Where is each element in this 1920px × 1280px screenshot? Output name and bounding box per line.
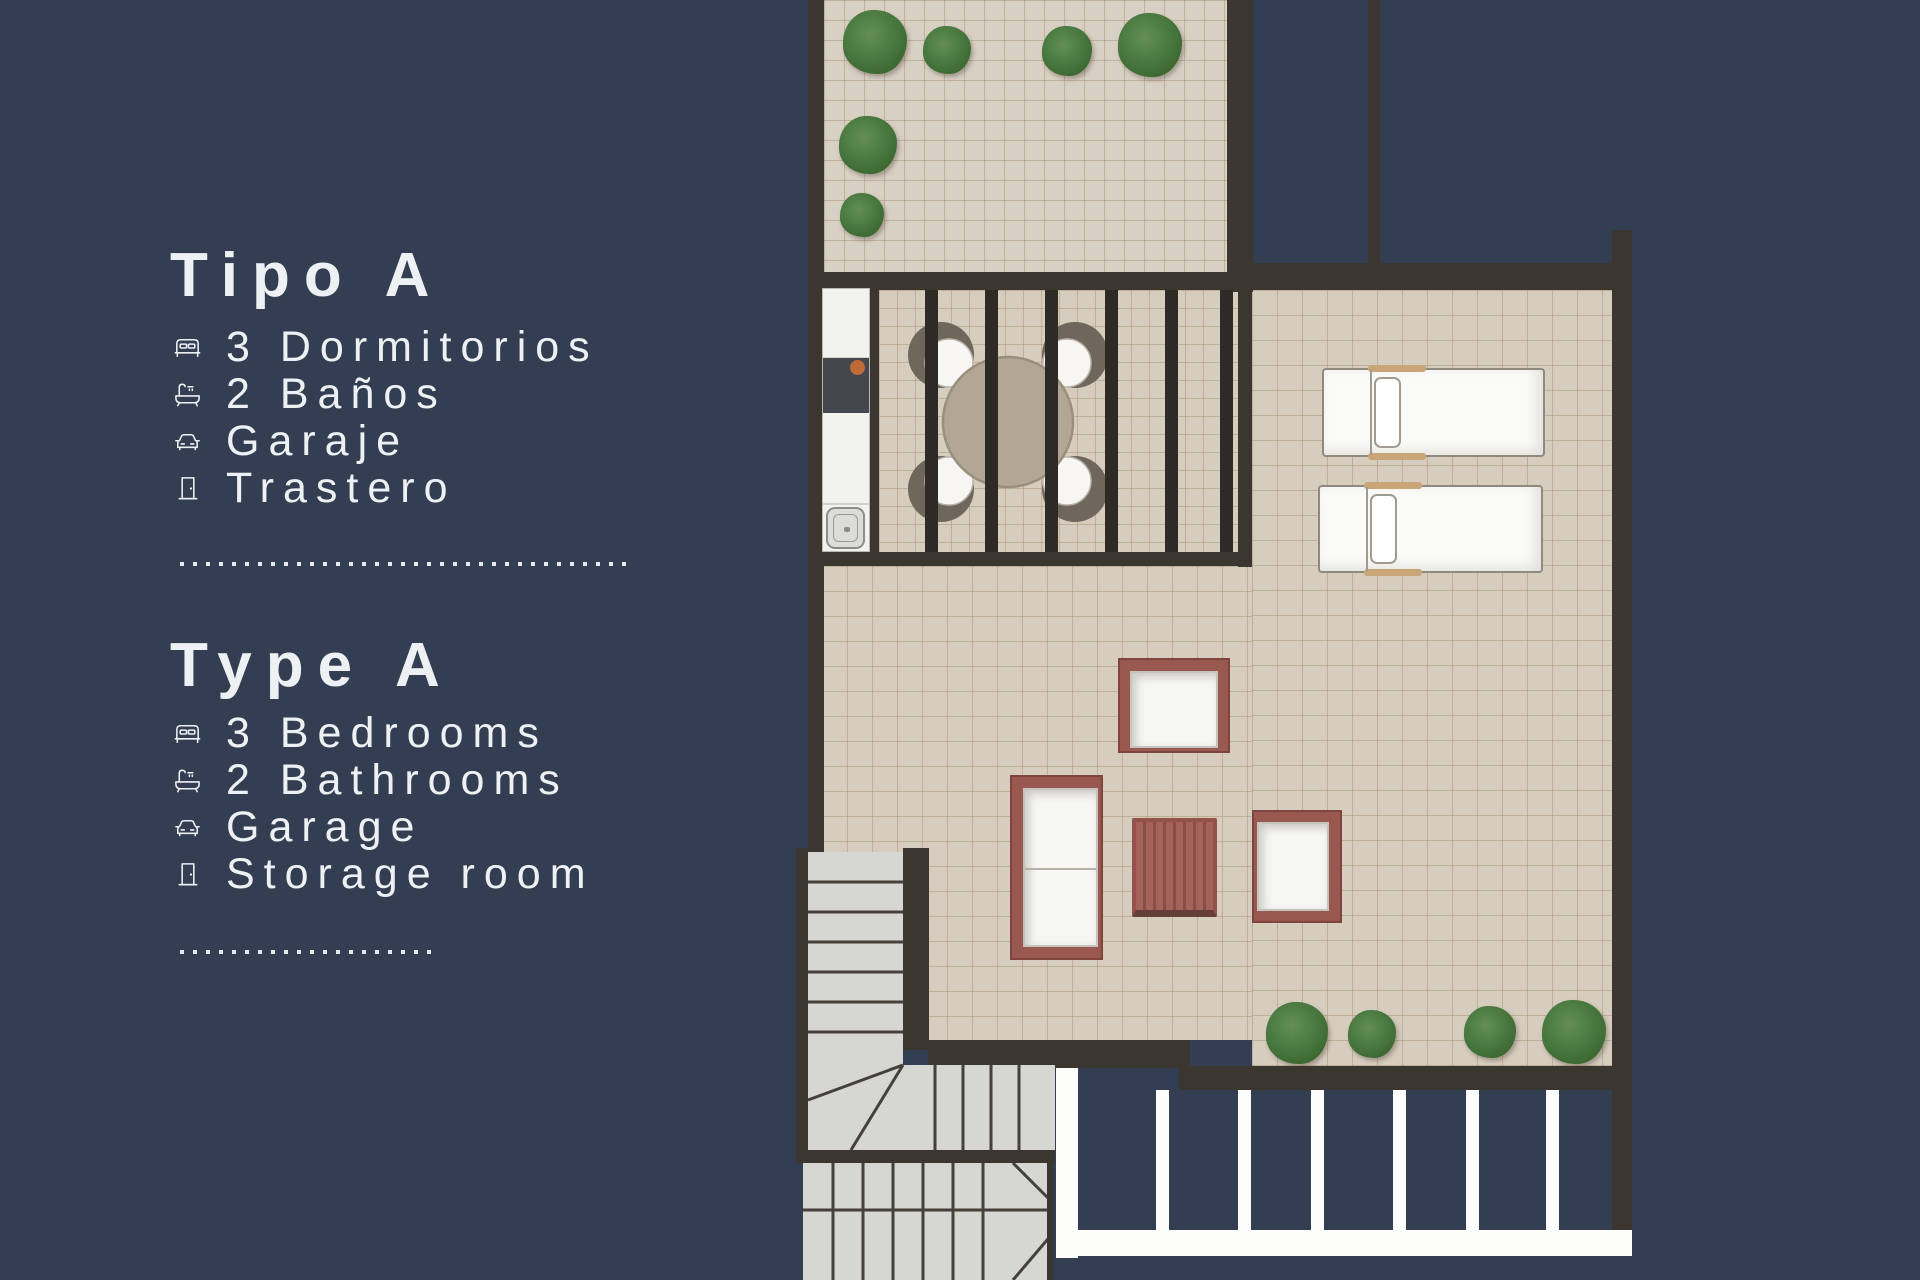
wall-pergola-bottom — [808, 552, 1250, 566]
wall-deck-top — [1238, 263, 1632, 290]
feature-row: Garage — [172, 804, 595, 851]
parking-stripe — [1156, 1090, 1169, 1232]
pergola-slat — [1045, 290, 1058, 552]
bathtub-icon — [172, 379, 203, 410]
feature-label: 3 Dormitorios — [226, 323, 599, 372]
feature-row: 3 Bedrooms — [172, 710, 595, 757]
feature-label: 2 Baños — [226, 370, 447, 419]
feature-label: Garaje — [226, 417, 409, 466]
door-icon — [172, 473, 203, 504]
parking-stripe — [1311, 1090, 1324, 1232]
lounger-backrest-line — [1370, 370, 1372, 455]
wall-bottom-right — [1179, 1066, 1632, 1090]
car-icon — [172, 812, 203, 843]
title-english: Type A — [170, 630, 454, 701]
lounger-pillow — [1370, 494, 1397, 564]
feature-row: 2 Bathrooms — [172, 757, 595, 804]
feature-label: 3 Bedrooms — [226, 709, 548, 758]
lounger-arm — [1364, 569, 1422, 576]
plant — [843, 10, 907, 74]
bathtub-icon — [172, 765, 203, 796]
armchair — [1118, 658, 1230, 753]
counter-seam — [823, 503, 869, 505]
parking-baseline — [1056, 1230, 1632, 1256]
lounger-backrest-line — [1366, 487, 1368, 571]
feature-row: Trastero — [172, 465, 599, 512]
dotted-separator — [180, 562, 635, 566]
plant — [1464, 1006, 1516, 1058]
parking-stripe — [1238, 1090, 1251, 1232]
pergola-slat — [925, 290, 938, 552]
pergola-slat — [1220, 290, 1233, 552]
sun-lounger — [1318, 485, 1543, 573]
armchair — [1252, 810, 1342, 923]
feature-row: 3 Dormitorios — [172, 324, 599, 371]
pergola-slat — [1105, 290, 1118, 552]
feature-list-english: 3 Bedrooms 2 Bathrooms Garage Storage ro… — [172, 710, 595, 898]
sink — [826, 507, 865, 549]
car-icon — [172, 426, 203, 457]
armchair-cushion — [1130, 671, 1218, 748]
kitchenette-counter — [822, 288, 870, 552]
bed-icon — [172, 332, 203, 363]
plant — [840, 193, 884, 237]
door-icon — [172, 859, 203, 890]
bed-icon — [172, 718, 203, 749]
plant — [1266, 1002, 1328, 1064]
parking-stripe — [1546, 1090, 1559, 1232]
lounger-pillow — [1374, 377, 1401, 448]
pergola-slat — [985, 290, 998, 552]
wall-divider — [1238, 290, 1252, 567]
feature-row: Storage room — [172, 851, 595, 898]
plant — [1542, 1000, 1606, 1064]
wall-terrace-right — [1227, 0, 1253, 292]
plant — [1118, 13, 1182, 77]
feature-label: 2 Bathrooms — [226, 756, 569, 805]
feature-list-spanish: 3 Dormitorios 2 Baños Garaje Trastero — [172, 324, 599, 512]
lounger-arm — [1368, 453, 1426, 460]
feature-label: Storage room — [226, 850, 595, 899]
feature-label: Garage — [226, 803, 423, 852]
plant — [1348, 1010, 1396, 1058]
sun-lounger — [1322, 368, 1545, 457]
parking-stripe — [1393, 1090, 1406, 1232]
slatted-coffee-table — [1132, 818, 1217, 917]
wall-counter — [870, 288, 879, 554]
dotted-separator — [180, 950, 432, 954]
feature-label: Trastero — [226, 464, 457, 513]
lounger-arm — [1364, 482, 1422, 489]
title-spanish: Tipo A — [170, 240, 443, 311]
plant — [839, 116, 897, 174]
wall-neighbor — [1368, 0, 1380, 268]
plant — [923, 26, 971, 74]
pergola-slat — [1165, 290, 1178, 552]
feature-row: Garaje — [172, 418, 599, 465]
brochure-page: Tipo A 3 Dormitorios 2 Baños Garaje Tras… — [0, 0, 1920, 1280]
parking-stripe — [1466, 1090, 1479, 1232]
cooktop-burner — [850, 360, 865, 375]
feature-row: 2 Baños — [172, 371, 599, 418]
staircase — [796, 848, 1057, 1280]
armchair-cushion — [1257, 822, 1329, 911]
lounger-arm — [1368, 365, 1426, 372]
plant — [1042, 26, 1092, 76]
